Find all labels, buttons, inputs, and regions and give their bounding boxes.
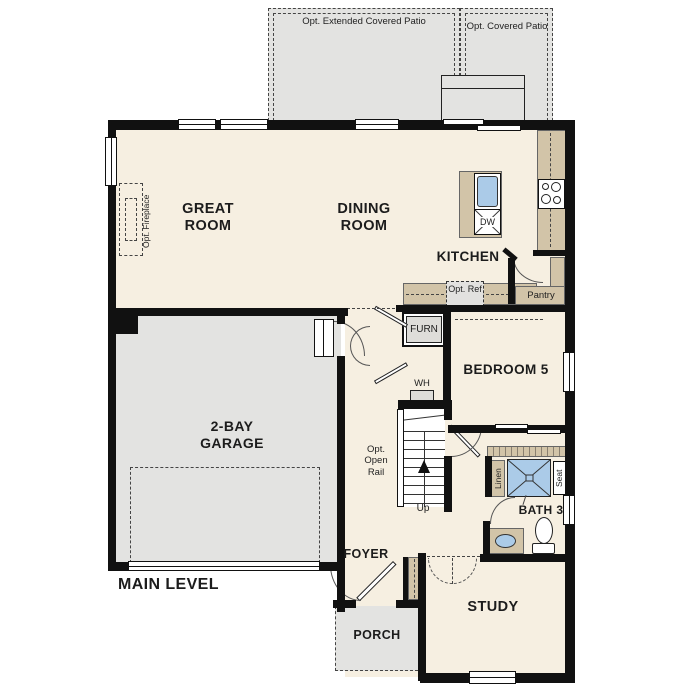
window — [355, 119, 399, 130]
wall — [108, 312, 116, 570]
opt-fireplace-inner — [125, 198, 137, 241]
wall — [483, 521, 490, 557]
opt-ref-label: Opt. Ref — [447, 284, 483, 295]
opt-fireplace-label: Opt. Fireplace — [141, 185, 153, 257]
window — [178, 119, 216, 130]
wall — [108, 308, 348, 316]
wall — [418, 553, 426, 681]
study-label: STUDY — [455, 599, 531, 616]
burner-icon — [551, 182, 561, 192]
pantry-label: Pantry — [517, 290, 565, 301]
shower — [507, 459, 551, 497]
furnace-label: FURN — [407, 324, 441, 336]
wall — [485, 456, 492, 497]
bath-sink — [495, 534, 516, 548]
wall — [444, 400, 452, 420]
porch-label: PORCH — [346, 628, 408, 643]
wall — [337, 312, 345, 324]
toilet-bowl — [535, 517, 553, 544]
furnace-closet: FURN — [402, 312, 446, 347]
seat-label: Seat — [554, 462, 565, 494]
patio-structure-line — [442, 88, 524, 89]
wall — [533, 250, 573, 256]
window — [563, 352, 575, 392]
garage-door-path — [130, 467, 320, 563]
coat-closet-dash — [414, 559, 415, 598]
burner-icon — [541, 194, 551, 204]
closet-bypass-door — [495, 424, 528, 429]
patio-extended-label: Opt. Extended Covered Patio — [288, 16, 440, 27]
level-title: MAIN LEVEL — [118, 575, 238, 594]
up-label: Up — [408, 503, 438, 515]
patio-inner-dash — [273, 13, 455, 121]
dishwasher-label: DW — [477, 217, 498, 227]
wall — [565, 120, 575, 682]
bedroom-opening-dash — [455, 319, 543, 320]
great-room-label: GREAT ROOM — [168, 201, 248, 236]
garage-door-opening — [128, 561, 320, 571]
up-arrow-icon — [418, 460, 430, 473]
window — [105, 137, 117, 186]
wall — [508, 258, 515, 304]
closet-bypass-door — [527, 429, 561, 434]
opt-refrigerator: Opt. Ref — [446, 281, 484, 307]
foyer-label: FOYER — [337, 547, 395, 562]
study-door-dash — [427, 556, 480, 557]
wall — [480, 554, 575, 562]
wall — [396, 305, 575, 312]
dishwasher: DW — [474, 209, 501, 235]
patio-covered-label: Opt. Covered Patio — [461, 21, 553, 32]
opt-open-rail-label: Opt. Open Rail — [356, 444, 396, 478]
linen-label: Linen — [493, 461, 504, 496]
bath-3-label: BATH 3 — [512, 503, 570, 517]
sliding-door-panel — [477, 125, 521, 131]
window — [469, 671, 516, 684]
stair-landing — [404, 409, 445, 431]
burner-icon — [553, 196, 561, 204]
closet-shelf — [487, 446, 567, 457]
wall — [333, 600, 356, 608]
furnace: FURN — [406, 316, 442, 343]
wall — [443, 311, 451, 403]
bedroom-5-label: BEDROOM 5 — [450, 362, 562, 378]
open-rail — [397, 409, 404, 507]
water-heater-label: WH — [406, 378, 438, 389]
hall-opening-dash — [347, 308, 400, 309]
wall — [444, 456, 452, 512]
dining-room-label: DINING ROOM — [324, 201, 404, 236]
kitchen-label: KITCHEN — [430, 249, 506, 265]
toilet-tank — [532, 543, 555, 554]
wall — [337, 356, 345, 612]
floor-plan: Opt. Extended Covered Patio Opt. Covered… — [0, 0, 687, 687]
window — [220, 119, 268, 130]
garage-entry-door — [314, 319, 334, 357]
wall — [403, 557, 408, 600]
kitchen-sink — [477, 176, 498, 207]
burner-icon — [542, 183, 549, 190]
garage-label: 2-BAY GARAGE — [187, 418, 277, 452]
